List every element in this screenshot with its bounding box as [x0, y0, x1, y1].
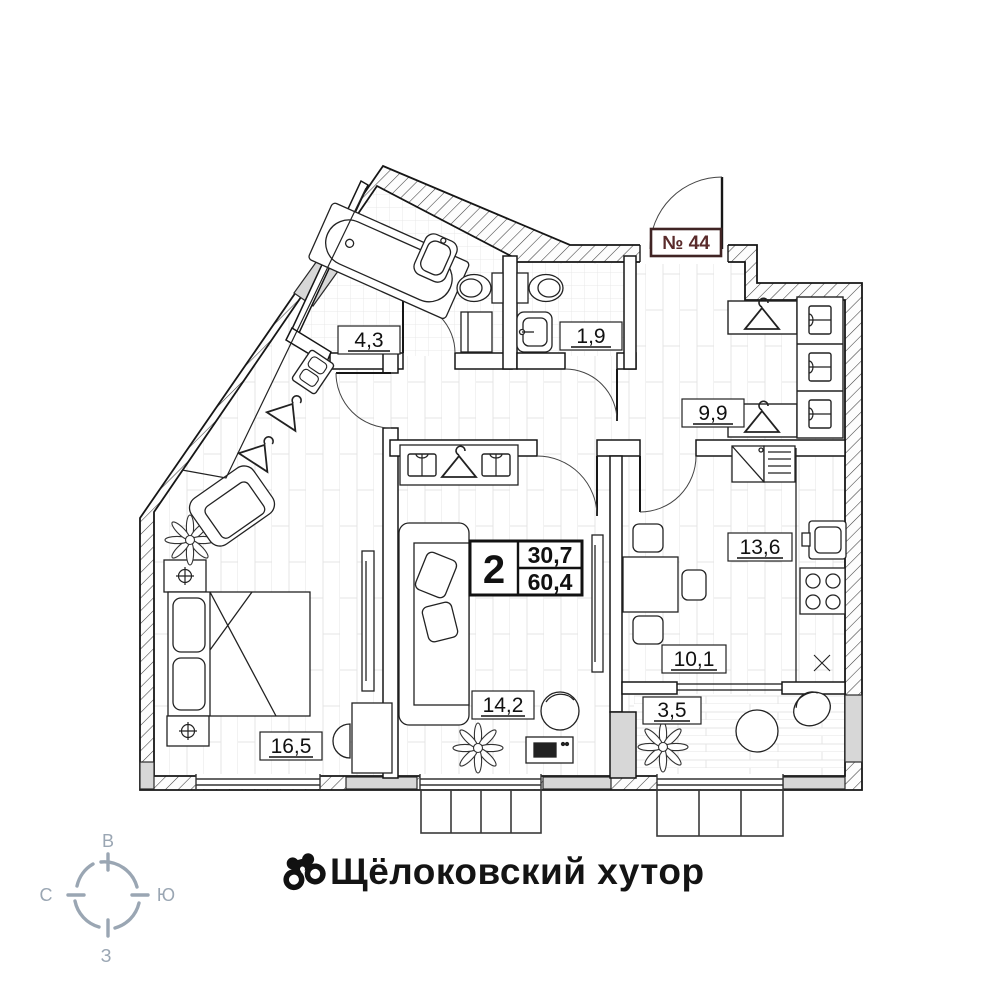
hallway-area: 9,9: [698, 402, 727, 425]
loggia-window: [657, 774, 783, 789]
dining-table: [623, 557, 678, 612]
nightstand: [167, 716, 209, 746]
rooms-count: 2: [483, 548, 505, 592]
room-label-toilet: 1,9: [560, 322, 622, 350]
room-label-dining: 10,1: [662, 645, 726, 673]
folded-clothes-icon: [408, 454, 436, 476]
bathroom-toilet: [457, 273, 503, 303]
compass-north-label: С: [40, 885, 53, 905]
footer-brand: Щёлоковский хутор: [278, 850, 705, 893]
apartment-number: № 44: [662, 233, 710, 254]
total-area-value: 60,4: [528, 569, 573, 595]
windows: [196, 774, 783, 789]
room-label-loggia: 3,5: [643, 697, 701, 724]
room-label-living: 14,2: [472, 691, 534, 719]
toilet-area: 1,9: [576, 325, 605, 348]
folded-clothes-icon: [809, 353, 831, 381]
compass-east-label: В: [102, 831, 114, 851]
media-console: [526, 737, 573, 763]
apartment-info-box: 2 30,7 60,4: [470, 541, 582, 595]
living-wardrobe: [400, 445, 518, 485]
room-label-bathroom: 4,3: [338, 326, 400, 354]
dining-chair: [633, 616, 663, 644]
dining-chair: [682, 570, 706, 600]
bathroom-area: 4,3: [354, 329, 383, 352]
dining-chair: [633, 524, 663, 552]
tv-bedroom: [362, 551, 374, 691]
tv-living: [592, 535, 603, 672]
living-area-value: 30,7: [528, 542, 573, 568]
room-label-kitchen: 13,6: [728, 533, 792, 561]
folded-clothes-icon: [809, 400, 831, 428]
toilet-wc: [517, 273, 563, 303]
loggia-pillar: [610, 712, 636, 778]
bed: [168, 592, 310, 716]
living-room-window: [420, 774, 541, 789]
compass-west-label: З: [101, 946, 112, 966]
project-title: Щёлоковский хутор: [330, 851, 705, 892]
stove: [800, 568, 845, 614]
kitchen-area: 13,6: [740, 536, 781, 559]
hallway-wardrobe: [797, 297, 843, 438]
kitchen-sink: [802, 521, 846, 559]
bathroom-cabinet: [461, 312, 492, 352]
dryer-rack: [764, 446, 795, 482]
floor-plan-page: № 44: [0, 0, 1000, 1000]
plant-icon: [638, 722, 688, 772]
loggia-area: 3,5: [657, 699, 686, 722]
dining-area: 10,1: [674, 648, 715, 671]
folded-clothes-icon: [809, 306, 831, 334]
sofa: [399, 523, 469, 725]
folded-clothes-icon: [482, 454, 510, 476]
loggia-table: [736, 710, 778, 752]
bedroom-area: 16,5: [271, 735, 312, 758]
plant-icon: [453, 723, 503, 773]
pouf: [541, 692, 579, 730]
fridge: [732, 446, 764, 482]
compass-south-label: Ю: [157, 885, 175, 905]
toilet-sink: [517, 312, 552, 352]
living-room-area: 14,2: [483, 694, 524, 717]
floor-plan-canvas: № 44: [0, 0, 1000, 1000]
apartment-number-plate: № 44: [651, 229, 721, 256]
room-label-bedroom: 16,5: [260, 732, 322, 760]
room-label-hallway: 9,9: [682, 399, 744, 427]
bedroom-window: [196, 774, 320, 789]
nightstand: [164, 560, 206, 592]
